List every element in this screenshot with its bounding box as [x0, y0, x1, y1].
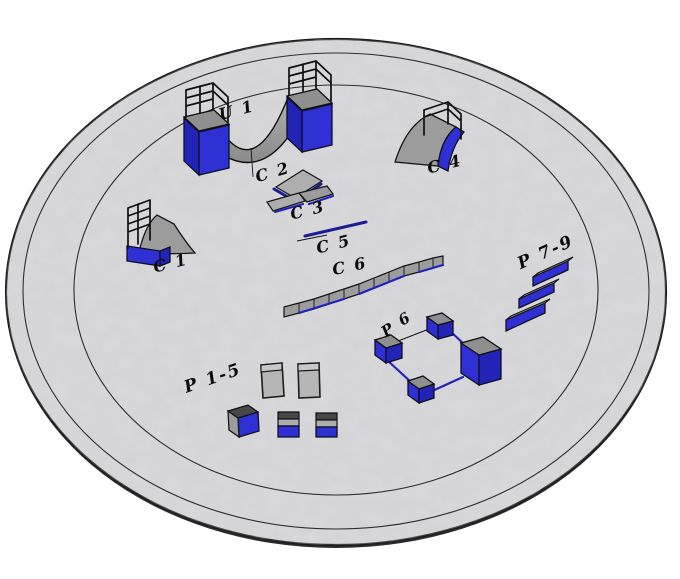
- p4-box-top-band: [278, 412, 299, 419]
- p5-box-top-band: [316, 413, 337, 420]
- p5-box-blue-band: [316, 427, 337, 437]
- skatepark-3d-figure: U 1 C 4 C 1 C 2 C 3 C 5 C 6 P 6 P 7-9 P …: [0, 0, 680, 579]
- p4-box: [278, 412, 299, 437]
- p2-tall-box-lid: [298, 363, 319, 371]
- p4-box-mid-band: [278, 419, 299, 426]
- u1-left-base-front: [199, 125, 229, 175]
- p5-box-mid-band: [316, 420, 337, 427]
- u1-right-base-front: [302, 104, 332, 152]
- p5-box: [316, 413, 337, 437]
- p4-box-blue-band: [278, 426, 299, 437]
- scene-svg: U 1 C 4 C 1 C 2 C 3 C 5 C 6 P 6 P 7-9 P …: [0, 0, 680, 579]
- p1-tall-box-lid: [261, 363, 282, 372]
